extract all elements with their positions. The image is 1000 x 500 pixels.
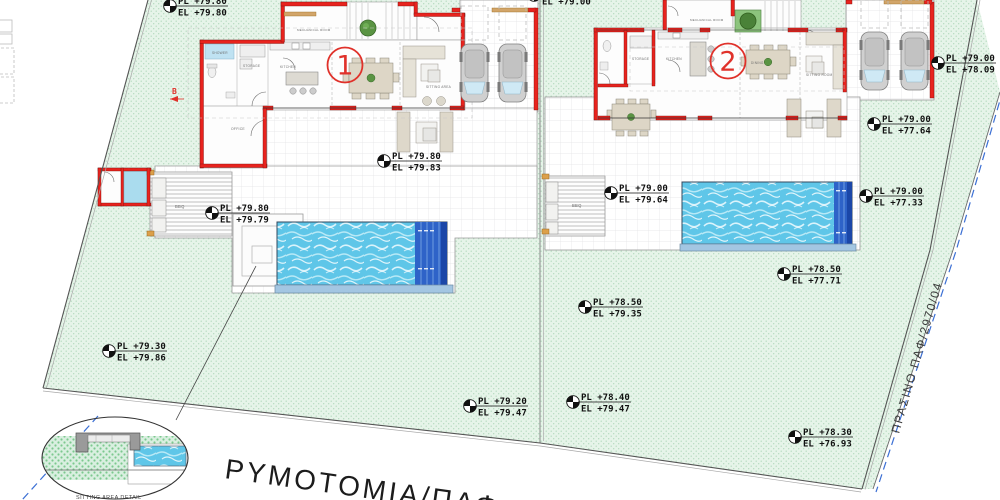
villa2-carport-lintel (884, 0, 924, 4)
villa2-pool (680, 182, 856, 251)
room-label: SHOWER (212, 51, 228, 55)
car (900, 32, 930, 90)
marker-el-value: EL +79.00 (542, 0, 591, 8)
marker-pl-value: PL +79.00 (882, 115, 931, 125)
marker-pl-value: PL +78.40 (581, 393, 630, 403)
marker-el-value: EL +79.80 (178, 9, 227, 19)
room-label: STORAGE (632, 57, 649, 61)
car (860, 32, 890, 90)
marker-el-value: EL +79.47 (478, 409, 527, 419)
villa1-carport-lintel (492, 8, 528, 12)
villa1-outdoor-shower (124, 171, 147, 203)
marker-pl-value: PL +79.00 (619, 184, 668, 194)
neighbour-parking (0, 20, 14, 103)
detail-label: SITTING AREA DETAIL (76, 495, 142, 500)
marker-el-value: EL +77.71 (792, 277, 841, 287)
car (498, 44, 528, 102)
marker-pl-value: PL +78.50 (593, 298, 642, 308)
room-label: MECHANICAL ROOM (297, 28, 331, 32)
room-label: OFFICE (231, 127, 245, 131)
villa1-pool-coping (275, 285, 453, 293)
marker-el-value: EL +76.93 (803, 440, 852, 450)
marker-pl-value: PL +79.00 (874, 187, 923, 197)
room-label: DINING (751, 61, 764, 65)
room-label: SITTING AREA (426, 85, 452, 89)
villa1-wood-lintel (284, 12, 316, 16)
section-marker-label: B (172, 87, 177, 96)
villa1-pool (275, 222, 453, 293)
room-label: BBQ (175, 204, 185, 209)
marker-el-value: EL +78.09 (946, 66, 995, 76)
marker-pl-value: PL +79.80 (392, 152, 441, 162)
villa2-tree (740, 13, 756, 29)
pergola-post (147, 231, 154, 236)
marker-el-value: EL +79.64 (619, 196, 668, 206)
site-plan: B SITTING AREA DETAIL ΡΥΜΟΤΟΜΙΑ/ΠΑΦ ΠΡΑΣ… (0, 0, 1000, 500)
marker-el-value: EL +77.64 (882, 127, 931, 137)
room-label: MECHANICAL ROOM (690, 18, 724, 22)
marker-pl-value: PL +79.20 (478, 397, 527, 407)
pergola-post (542, 229, 549, 234)
pergola-post (542, 174, 549, 179)
marker-el-value: EL +79.47 (581, 405, 630, 415)
road-label: ΡΥΜΟΤΟΜΙΑ/ΠΑΦ (223, 453, 502, 500)
marker-el-value: EL +79.35 (593, 310, 642, 320)
villa2-dining-set (741, 45, 796, 79)
villa1-bbq-pergola (147, 170, 232, 236)
villa2-pool-coping (680, 244, 856, 251)
marker-pl-value: PL +79.80 (220, 204, 269, 214)
marker-el-value: EL +77.33 (874, 199, 923, 209)
marker-pl-value: PL +79.30 (117, 342, 166, 352)
marker-pl-value: PL +78.30 (803, 428, 852, 438)
marker-el-value: EL +79.79 (220, 216, 269, 226)
villa1-office (200, 106, 267, 168)
room-label: KITCHEN (666, 57, 682, 61)
marker-pl-value: PL +79.00 (946, 54, 995, 64)
room-label: STORAGE (243, 64, 260, 68)
room-label: SITTING ROOM (806, 73, 832, 77)
room-label: BBQ (572, 203, 582, 208)
marker-pl-value: PL +78.50 (792, 265, 841, 275)
unit-number: 2 (719, 47, 736, 78)
car (460, 44, 490, 102)
marker-el-value: EL +79.83 (392, 164, 441, 174)
unit-number: 1 (336, 51, 353, 82)
marker-el-value: EL +79.86 (117, 354, 166, 364)
room-label: KITCHEN (280, 65, 296, 69)
marker-pl-value: PL +79.80 (178, 0, 227, 7)
